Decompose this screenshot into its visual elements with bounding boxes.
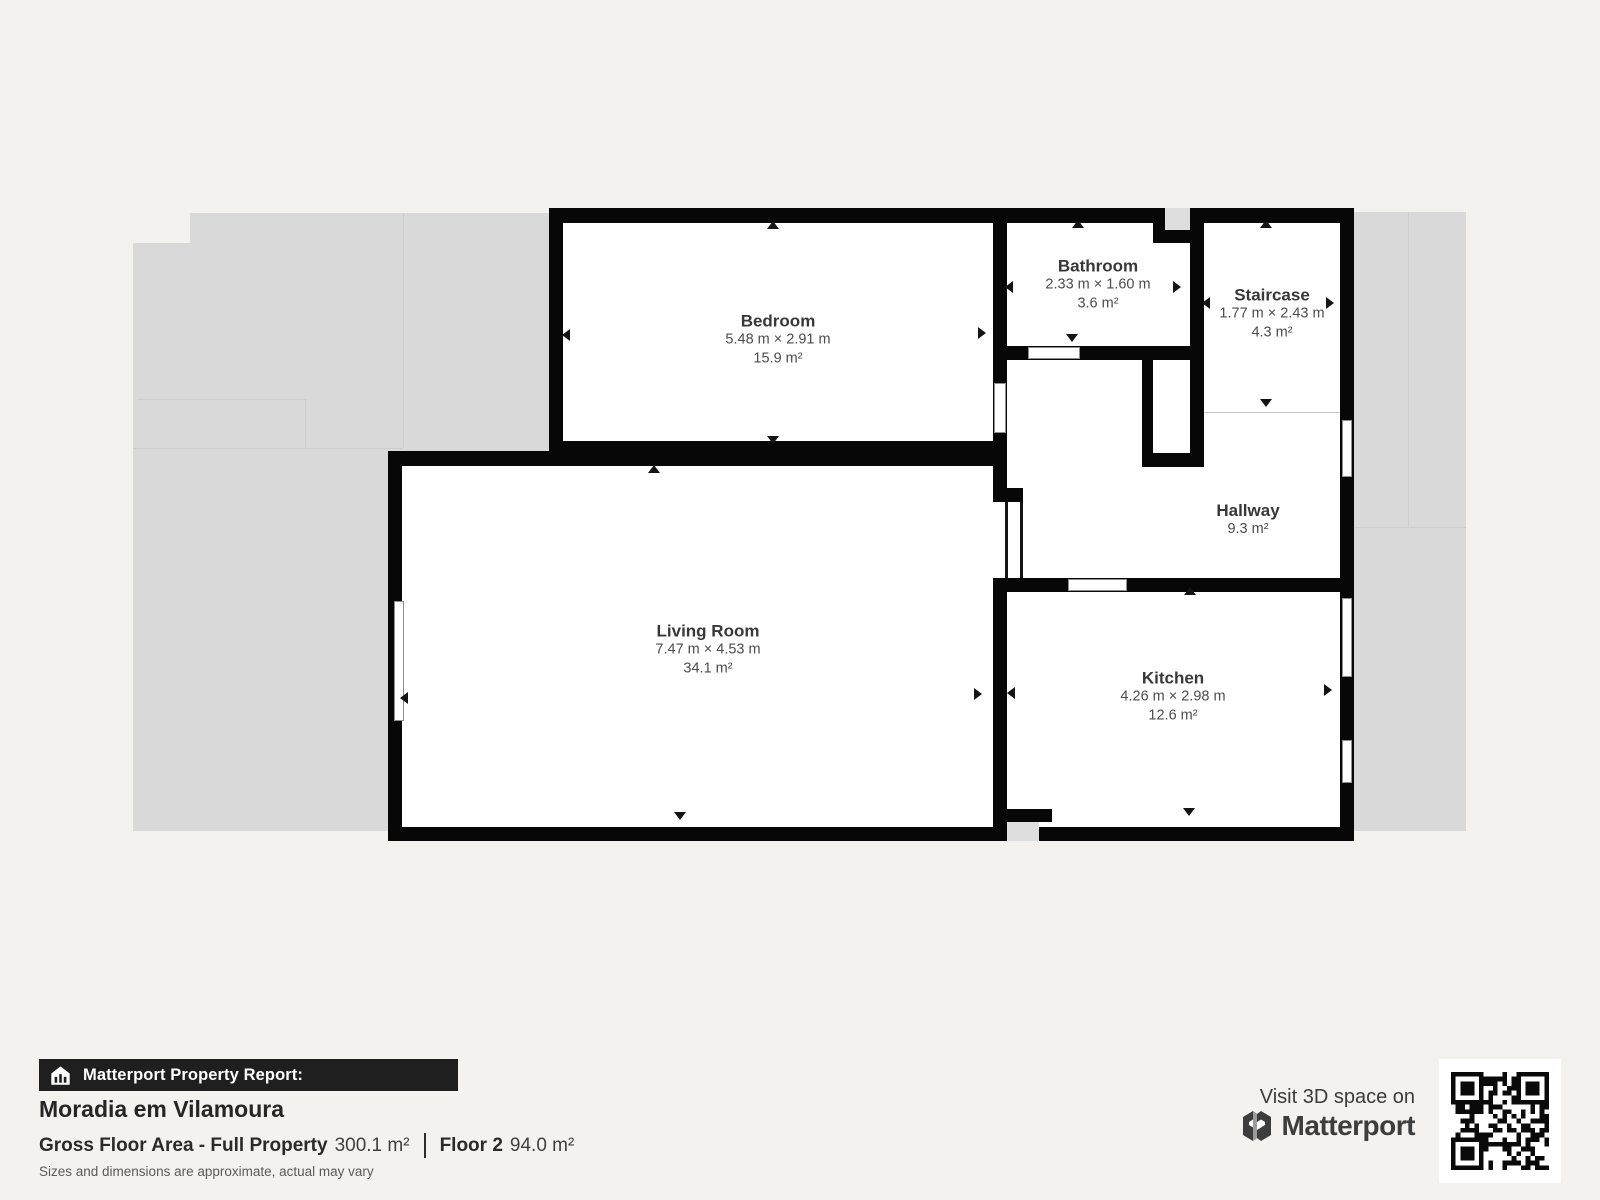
property-report-icon — [50, 1065, 71, 1086]
room-label-bathroom: Bathroom 2.33 m × 1.60 m 3.6 m² — [1045, 257, 1150, 314]
dimension-arrow-right-staircase — [1326, 297, 1334, 309]
page: { "page": { "background": "#f3f2ef" }, "… — [0, 0, 1600, 1200]
dimension-arrow-right-bathroom — [1173, 281, 1181, 293]
room-dimensions: 7.47 m × 4.53 m — [655, 641, 760, 660]
floor-area-info: Gross Floor Area - Full Property 300.1 m… — [39, 1133, 574, 1158]
room-name: Bathroom — [1045, 257, 1150, 276]
wall-center-upper — [993, 208, 1007, 488]
property-outline-2 — [1354, 212, 1466, 528]
wall-kitchen-step — [1007, 809, 1052, 822]
dimension-arrow-down-staircase — [1260, 399, 1272, 407]
matterport-mark-icon — [1241, 1110, 1273, 1142]
wall-stair-right — [1190, 360, 1204, 467]
wall-bedroom-left — [549, 208, 563, 456]
room-dimensions: 5.48 m × 2.91 m — [725, 331, 830, 350]
floor-label: Floor 2 — [440, 1135, 503, 1157]
wall-kitchen-bottom — [1039, 827, 1354, 841]
matterport-logo[interactable]: Matterport — [1241, 1110, 1415, 1142]
dimension-arrow-left-kitchen — [1007, 687, 1015, 699]
dimension-arrow-left-staircase — [1202, 297, 1210, 309]
dimension-arrow-down-living — [674, 812, 686, 820]
dimension-arrow-down-bedroom — [767, 436, 779, 444]
dimension-arrow-down-kitchen — [1183, 808, 1195, 816]
room-label-staircase: Staircase 1.77 m × 2.43 m 4.3 m² — [1219, 286, 1324, 343]
divider — [424, 1133, 426, 1158]
silhouette-partition-line-4 — [1408, 212, 1409, 528]
room-label-hallway: Hallway 9.3 m² — [1216, 501, 1279, 539]
room-area: 12.6 m² — [1120, 707, 1225, 726]
matterport-wordmark: Matterport — [1282, 1110, 1415, 1142]
dimension-arrow-right-kitchen — [1324, 684, 1332, 696]
room-area: 4.3 m² — [1219, 324, 1324, 343]
gross-floor-area-label: Gross Floor Area - Full Property — [39, 1135, 328, 1157]
room-area: 15.9 m² — [725, 350, 830, 369]
disclaimer-text: Sizes and dimensions are approximate, ac… — [39, 1164, 374, 1179]
silhouette-partition-line-1 — [137, 399, 305, 400]
room-label-living-room: Living Room 7.47 m × 4.53 m 34.1 m² — [655, 622, 760, 679]
property-outline-3 — [1354, 528, 1466, 831]
dimension-arrow-up-staircase — [1260, 220, 1272, 228]
room-label-bedroom: Bedroom 5.48 m × 2.91 m 15.9 m² — [725, 312, 830, 369]
silhouette-partition-line-5 — [1354, 527, 1466, 528]
wall-living-bottom — [388, 827, 1007, 841]
silhouette-partition-line-2 — [305, 399, 306, 449]
room-area: 34.1 m² — [655, 660, 760, 679]
visit-3d-space-label: Visit 3D space on — [1260, 1086, 1415, 1109]
property-outline-0 — [190, 213, 549, 245]
dimension-arrow-up-bedroom — [767, 221, 779, 229]
door-opening-bedroom-hallway — [994, 383, 1006, 433]
room-name: Staircase — [1219, 286, 1324, 305]
room-name: Hallway — [1216, 501, 1279, 520]
dimension-arrow-left-bathroom — [1005, 281, 1013, 293]
wall-notch-kitchen — [1007, 822, 1039, 841]
room-label-kitchen: Kitchen 4.26 m × 2.98 m 12.6 m² — [1120, 669, 1225, 726]
door-opening-living-hallway — [1005, 502, 1023, 578]
dimension-arrow-left-living — [400, 692, 408, 704]
room-name: Living Room — [655, 622, 760, 641]
floor-value: 94.0 m² — [510, 1135, 574, 1157]
room-dimensions: 4.26 m × 2.98 m — [1120, 688, 1225, 707]
wall-center-step — [993, 488, 1023, 502]
room-area: 9.3 m² — [1216, 520, 1279, 539]
dimension-arrow-right-bedroom — [978, 327, 986, 339]
room-dimensions: 2.33 m × 1.60 m — [1045, 276, 1150, 295]
dimension-arrow-up-living — [648, 465, 660, 473]
wall-living-top — [388, 451, 1007, 466]
window-kitchen-right-1 — [1342, 598, 1352, 677]
silhouette-partition-line-0 — [403, 213, 404, 448]
report-header-bar: Matterport Property Report: — [39, 1059, 458, 1091]
window-hallway-right — [1342, 420, 1352, 477]
wall-bathroom-staircase — [1190, 208, 1204, 360]
property-title: Moradia em Vilamoura — [39, 1096, 284, 1123]
wall-center-lower — [993, 578, 1007, 841]
dimension-arrow-up-bathroom — [1072, 220, 1084, 228]
room-dimensions: 1.77 m × 2.43 m — [1219, 305, 1324, 324]
dimension-arrow-down-bathroom — [1066, 334, 1078, 342]
door-opening-bathroom — [1028, 347, 1080, 359]
silhouette-partition-line-3 — [133, 448, 403, 449]
dimension-arrow-right-living — [974, 688, 982, 700]
room-name: Bedroom — [725, 312, 830, 331]
wall-hallway-bottom — [1007, 578, 1354, 592]
qr-code[interactable] — [1439, 1059, 1561, 1183]
wall-notch-top — [1165, 208, 1190, 230]
gross-floor-area-value: 300.1 m² — [335, 1135, 410, 1157]
floor-plan — [0, 0, 1600, 1200]
room-area: 3.6 m² — [1045, 295, 1150, 314]
wall-top — [549, 208, 1354, 223]
staircase-hallway-divider — [1204, 412, 1340, 413]
room-name: Kitchen — [1120, 669, 1225, 688]
door-opening-kitchen — [1068, 579, 1127, 591]
report-bar-label: Matterport Property Report: — [83, 1066, 303, 1085]
wall-stair-inner — [1142, 360, 1153, 467]
dimension-arrow-left-bedroom — [562, 329, 570, 341]
wall-stair-cap — [1142, 453, 1204, 467]
window-kitchen-right-2 — [1342, 740, 1352, 783]
dimension-arrow-up-kitchen — [1184, 587, 1196, 595]
